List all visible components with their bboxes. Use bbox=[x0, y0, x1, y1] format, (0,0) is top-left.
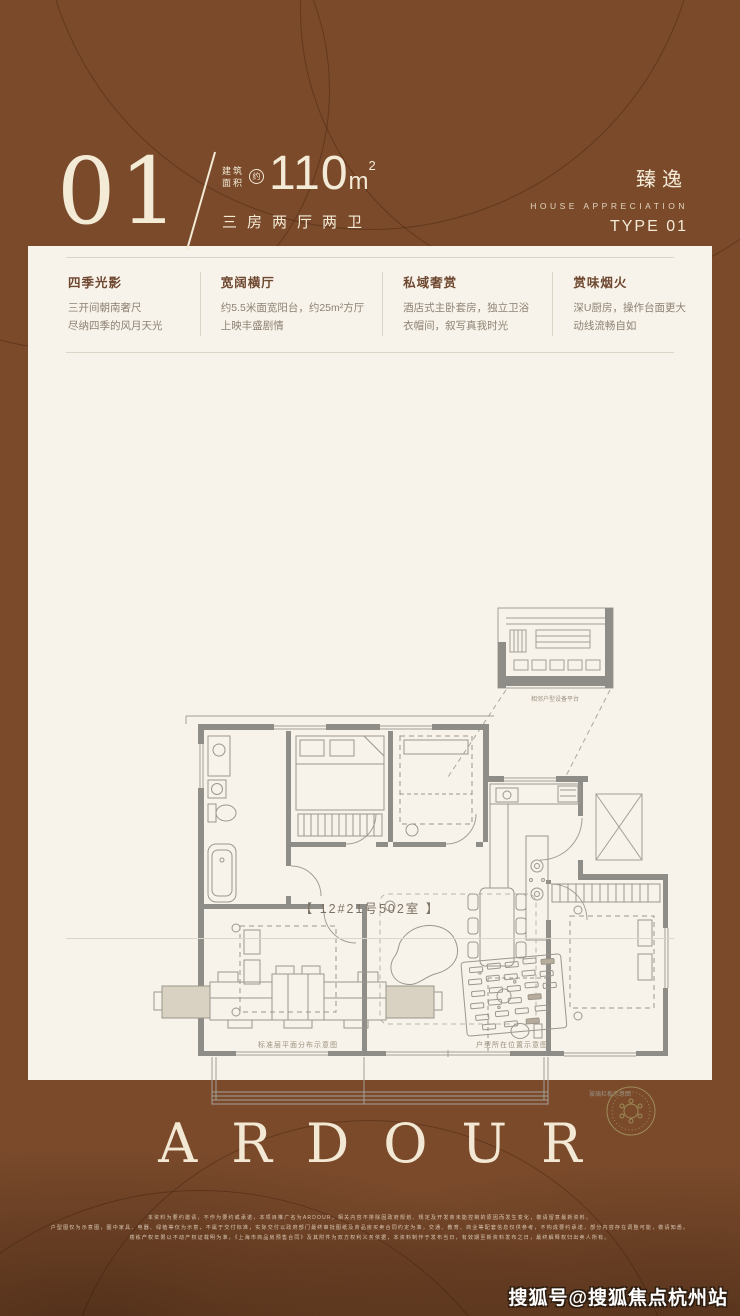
disclaimer-line: 户型图仅为示意图，图中家具、电器、绿植等仅为示意，不属于交付标准，实际交付以政府… bbox=[0, 1226, 740, 1231]
unit-type-number: 01 bbox=[57, 146, 182, 238]
disclaimer-line: 本资料为要约邀请，不作为要约或承诺，本项目推广名为ARDOUR，相关内容不排除因… bbox=[0, 1216, 740, 1221]
site-location-plan bbox=[452, 952, 582, 1049]
area-unit: m bbox=[349, 168, 369, 196]
poster-page: 01 建筑 面积 约 110 m 2 三房两厅两卫 臻逸 HOUSE APPRE… bbox=[0, 0, 740, 1316]
section-divider bbox=[66, 938, 674, 939]
stair-shaft bbox=[596, 794, 642, 860]
slash-divider bbox=[186, 152, 216, 251]
detail-caption: 相邻户型设备平台 bbox=[531, 695, 579, 703]
feature-title: 私域奢赏 bbox=[403, 272, 552, 291]
feature-card: 四季光影 三开间朝南奢尺 尽纳四季的风月天光 bbox=[66, 272, 200, 336]
area-label: 建筑 面积 bbox=[222, 165, 244, 189]
approx-badge: 约 bbox=[249, 169, 264, 184]
content-panel: 四季光影 三开间朝南奢尺 尽纳四季的风月天光 宽阔横厅 约5.5米面宽阳台，约2… bbox=[28, 246, 712, 1080]
feature-card: 私域奢赏 酒店式主卧套房，独立卫浴 衣帽间，叙写真我时光 bbox=[382, 272, 552, 336]
series-name-cn: 臻逸 bbox=[530, 163, 688, 192]
footer: ARDOUR 本资料为要约邀请，不作为要约或承诺，本项目推广名为ARDOUR，相… bbox=[0, 1080, 740, 1316]
area-value: 110 bbox=[269, 150, 349, 198]
feature-row: 四季光影 三开间朝南奢尺 尽纳四季的风月天光 宽阔横厅 约5.5米面宽阳台，约2… bbox=[66, 257, 674, 353]
feature-title: 四季光影 bbox=[68, 272, 200, 291]
bedroom-2 bbox=[296, 736, 384, 836]
feature-card: 赏味烟火 深U厨房，操作台面更大 动线流畅自如 bbox=[552, 272, 674, 336]
brand-seal-icon bbox=[604, 1084, 658, 1143]
parapet-line bbox=[186, 716, 494, 724]
disclaimer-line: 楼栋产权年限以不动产权证载明为准，《上海市商品房预售合同》及其附件为双方权利义务… bbox=[0, 1236, 740, 1241]
room-configuration: 三房两厅两卫 bbox=[222, 211, 376, 232]
header-right: 臻逸 HOUSE APPRECIATION TYPE 01 bbox=[530, 163, 688, 236]
feature-title: 宽阔横厅 bbox=[221, 272, 382, 291]
unit-label: 【 12#21号502室 】 bbox=[28, 898, 712, 917]
equipment-platform-detail bbox=[498, 608, 613, 688]
area-block: 建筑 面积 约 110 m 2 三房两厅两卫 bbox=[222, 150, 376, 232]
keyplan-caption: 标准层平面分布示意图 bbox=[148, 1040, 448, 1050]
bathroom-fixtures bbox=[208, 736, 236, 902]
feature-title: 赏味烟火 bbox=[573, 272, 674, 291]
bedroom-3 bbox=[400, 736, 472, 836]
leader-lines bbox=[446, 690, 610, 780]
siteplan-caption: 户型所在位置示意图 bbox=[448, 1040, 576, 1050]
feature-card: 宽阔横厅 约5.5米面宽阳台，约25m²方厅 上映丰盛剧情 bbox=[200, 272, 382, 336]
type-label: TYPE 01 bbox=[530, 218, 688, 236]
header: 01 建筑 面积 约 110 m 2 三房两厅两卫 臻逸 HOUSE APPRE… bbox=[0, 0, 740, 246]
disclaimer-lines: 本资料为要约邀请，不作为要约或承诺，本项目推广名为ARDOUR，相关内容不排除因… bbox=[0, 1216, 740, 1246]
building-keyplan bbox=[148, 958, 448, 1043]
floor-plan-drawing: 相邻户型设备平台 bbox=[128, 598, 673, 1153]
watermark: 搜狐号@搜狐焦点杭州站 bbox=[508, 1283, 728, 1310]
area-unit-sup: 2 bbox=[369, 158, 376, 173]
series-name-en: HOUSE APPRECIATION bbox=[530, 201, 688, 211]
floor-plan: 相邻户型设备平台 bbox=[128, 598, 673, 1153]
